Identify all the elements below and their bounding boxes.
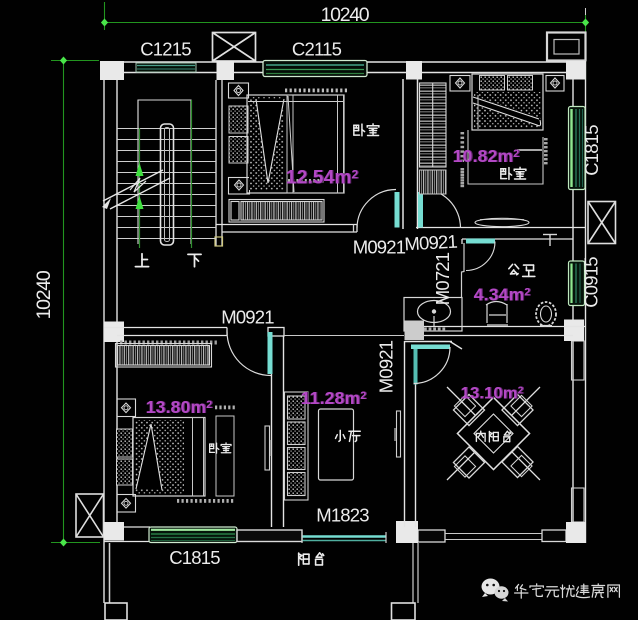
svg-text:M1823: M1823 [316, 505, 369, 526]
svg-text:M0921: M0921 [353, 237, 406, 258]
svg-text:M0921: M0921 [376, 340, 397, 393]
svg-text:C1815: C1815 [581, 125, 602, 176]
svg-text:M0721: M0721 [432, 252, 453, 305]
svg-text:13.10m2: 13.10m2 [460, 385, 523, 403]
svg-text:10240: 10240 [321, 4, 370, 26]
svg-text:C1215: C1215 [140, 39, 191, 60]
svg-text:12.54m2: 12.54m2 [286, 168, 359, 189]
svg-text:13.80m2: 13.80m2 [146, 397, 213, 417]
svg-text:C0915: C0915 [581, 257, 602, 308]
svg-text:10240: 10240 [33, 270, 55, 319]
svg-text:M0921: M0921 [404, 231, 458, 255]
svg-text:10.82m2: 10.82m2 [453, 146, 520, 166]
svg-text:4.34m2: 4.34m2 [474, 285, 531, 305]
svg-text:C1815: C1815 [169, 547, 220, 568]
svg-text:M0921: M0921 [221, 307, 274, 328]
svg-text:11.28m2: 11.28m2 [301, 388, 367, 408]
svg-text:C2115: C2115 [292, 39, 342, 60]
